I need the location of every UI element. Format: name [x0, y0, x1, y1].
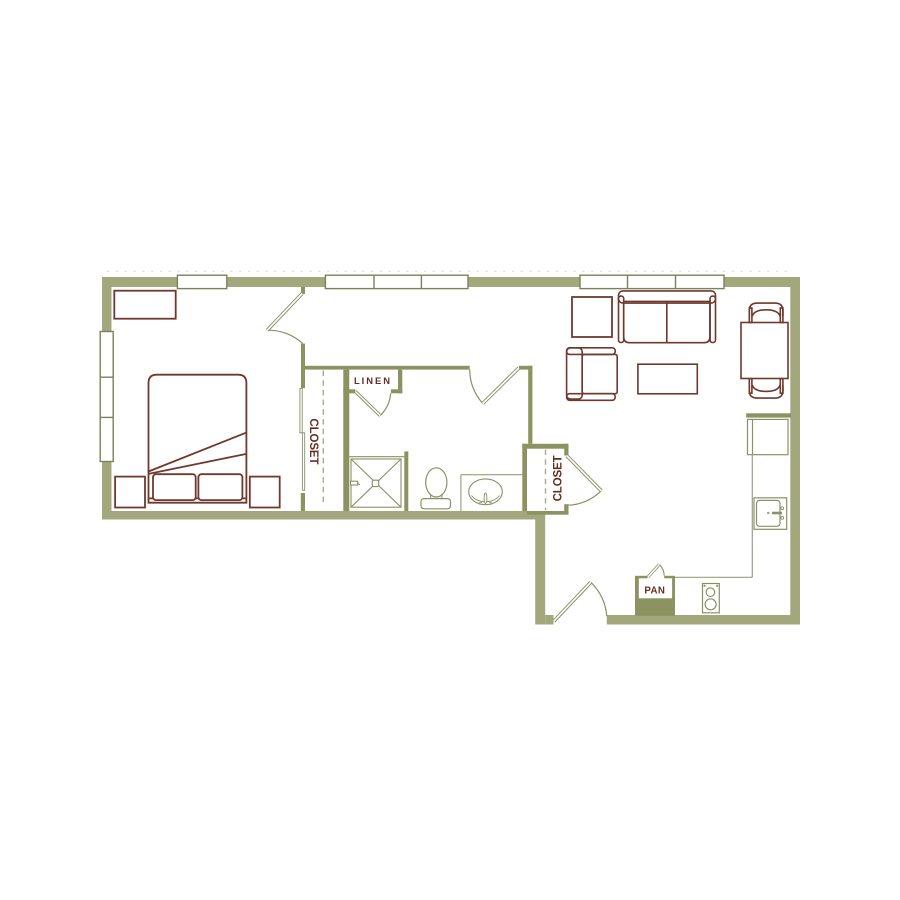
svg-text:LINEN: LINEN	[354, 375, 392, 386]
svg-text:PAN: PAN	[644, 585, 665, 596]
svg-text:CLOSET: CLOSET	[552, 455, 564, 501]
svg-text:CLOSET: CLOSET	[307, 418, 319, 464]
